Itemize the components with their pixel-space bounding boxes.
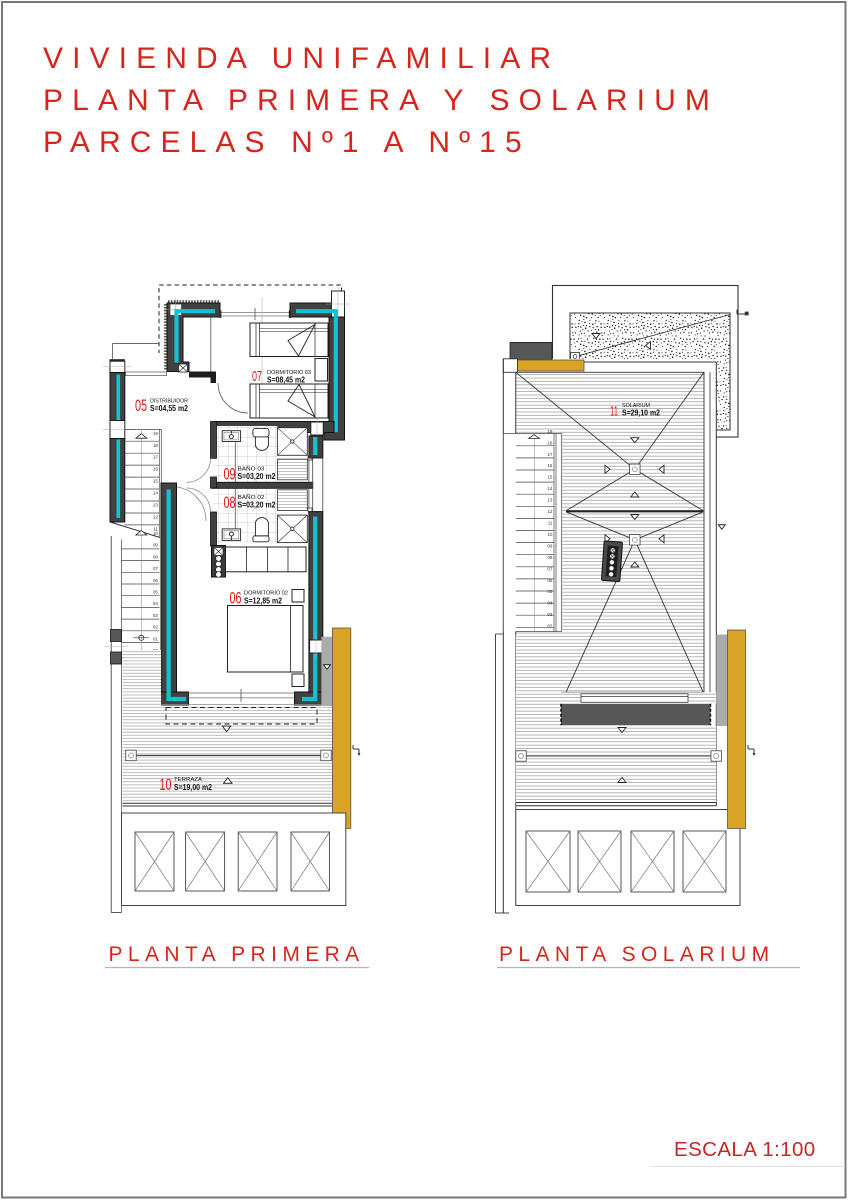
svg-text:14: 14 [547,486,553,491]
svg-text:08: 08 [224,494,236,512]
svg-text:PARCELAS Nº1 A Nº15: PARCELAS Nº1 A Nº15 [43,126,531,159]
svg-text:05: 05 [153,590,159,595]
svg-text:17: 17 [153,455,159,460]
svg-text:S=04,55 m2: S=04,55 m2 [150,404,189,413]
svg-text:15: 15 [547,475,553,480]
svg-text:09: 09 [224,466,236,484]
svg-text:10: 10 [160,776,172,794]
svg-text:07: 07 [547,566,553,571]
svg-text:09: 09 [547,543,553,548]
svg-text:15: 15 [153,479,159,484]
svg-text:06: 06 [547,578,553,583]
svg-text:18: 18 [153,443,159,448]
svg-text:02: 02 [547,624,553,629]
svg-text:04: 04 [153,601,159,606]
svg-text:S=08,45 m2: S=08,45 m2 [267,376,306,385]
svg-text:16: 16 [547,463,553,468]
svg-text:PLANTA PRIMERA: PLANTA PRIMERA [109,943,365,966]
svg-text:S=03,20 m2: S=03,20 m2 [238,501,277,510]
svg-text:03: 03 [547,612,553,617]
svg-text:S=03,20 m2: S=03,20 m2 [238,472,277,481]
svg-text:14: 14 [153,491,159,496]
svg-text:03: 03 [153,613,159,618]
svg-text:S=19,00 m2: S=19,00 m2 [174,783,213,792]
svg-text:ESCALA 1:100: ESCALA 1:100 [674,1138,816,1161]
svg-text:VIVIENDA UNIFAMILIAR: VIVIENDA UNIFAMILIAR [43,42,560,75]
svg-text:S=12,85 m2: S=12,85 m2 [244,597,283,606]
svg-text:PLANTA SOLARIUM: PLANTA SOLARIUM [499,943,775,966]
svg-text:06: 06 [230,590,242,608]
svg-text:13: 13 [547,498,553,503]
svg-text:04: 04 [547,601,553,606]
svg-text:08: 08 [153,554,159,559]
svg-text:06: 06 [153,578,159,583]
svg-text:13: 13 [153,503,159,508]
svg-text:09: 09 [153,543,159,548]
svg-text:08: 08 [547,555,553,560]
svg-text:11: 11 [548,521,553,526]
svg-text:07: 07 [153,566,159,571]
svg-text:11: 11 [610,404,618,419]
svg-text:10: 10 [153,531,159,536]
svg-text:19: 19 [547,429,553,434]
svg-text:02: 02 [153,625,159,630]
svg-text:PLANTA PRIMERA Y SOLARIUM: PLANTA PRIMERA Y SOLARIUM [43,84,719,117]
svg-text:S=29,10 m2: S=29,10 m2 [622,409,661,418]
svg-text:12: 12 [153,515,159,520]
svg-text:01: 01 [153,636,159,641]
svg-text:19: 19 [153,431,159,436]
svg-text:16: 16 [153,467,159,472]
svg-text:18: 18 [547,440,553,445]
svg-text:17: 17 [547,452,553,457]
svg-text:05: 05 [135,397,147,415]
svg-text:07: 07 [252,368,262,385]
svg-text:05: 05 [547,589,553,594]
svg-text:12: 12 [547,509,553,514]
svg-text:10: 10 [547,532,553,537]
